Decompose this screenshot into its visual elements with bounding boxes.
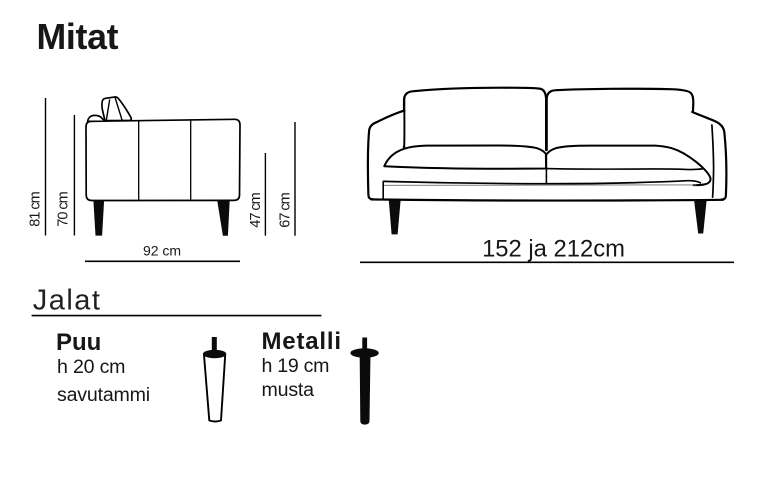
svg-text:h 19 cm: h 19 cm	[262, 355, 330, 377]
svg-text:47 cm: 47 cm	[248, 192, 264, 227]
svg-text:70 cm: 70 cm	[56, 191, 72, 226]
svg-text:Mitat: Mitat	[37, 17, 119, 57]
svg-text:67 cm: 67 cm	[278, 192, 294, 227]
svg-text:Jalat: Jalat	[33, 285, 102, 317]
svg-text:81 cm: 81 cm	[27, 191, 43, 226]
svg-text:h 20 cm: h 20 cm	[57, 356, 125, 378]
svg-text:152 ja 212cm: 152 ja 212cm	[482, 236, 625, 263]
svg-text:savutammi: savutammi	[57, 384, 150, 406]
svg-text:Puu: Puu	[56, 329, 101, 356]
svg-text:92 cm: 92 cm	[143, 243, 181, 259]
svg-text:musta: musta	[262, 379, 315, 401]
svg-text:Metalli: Metalli	[262, 328, 342, 355]
